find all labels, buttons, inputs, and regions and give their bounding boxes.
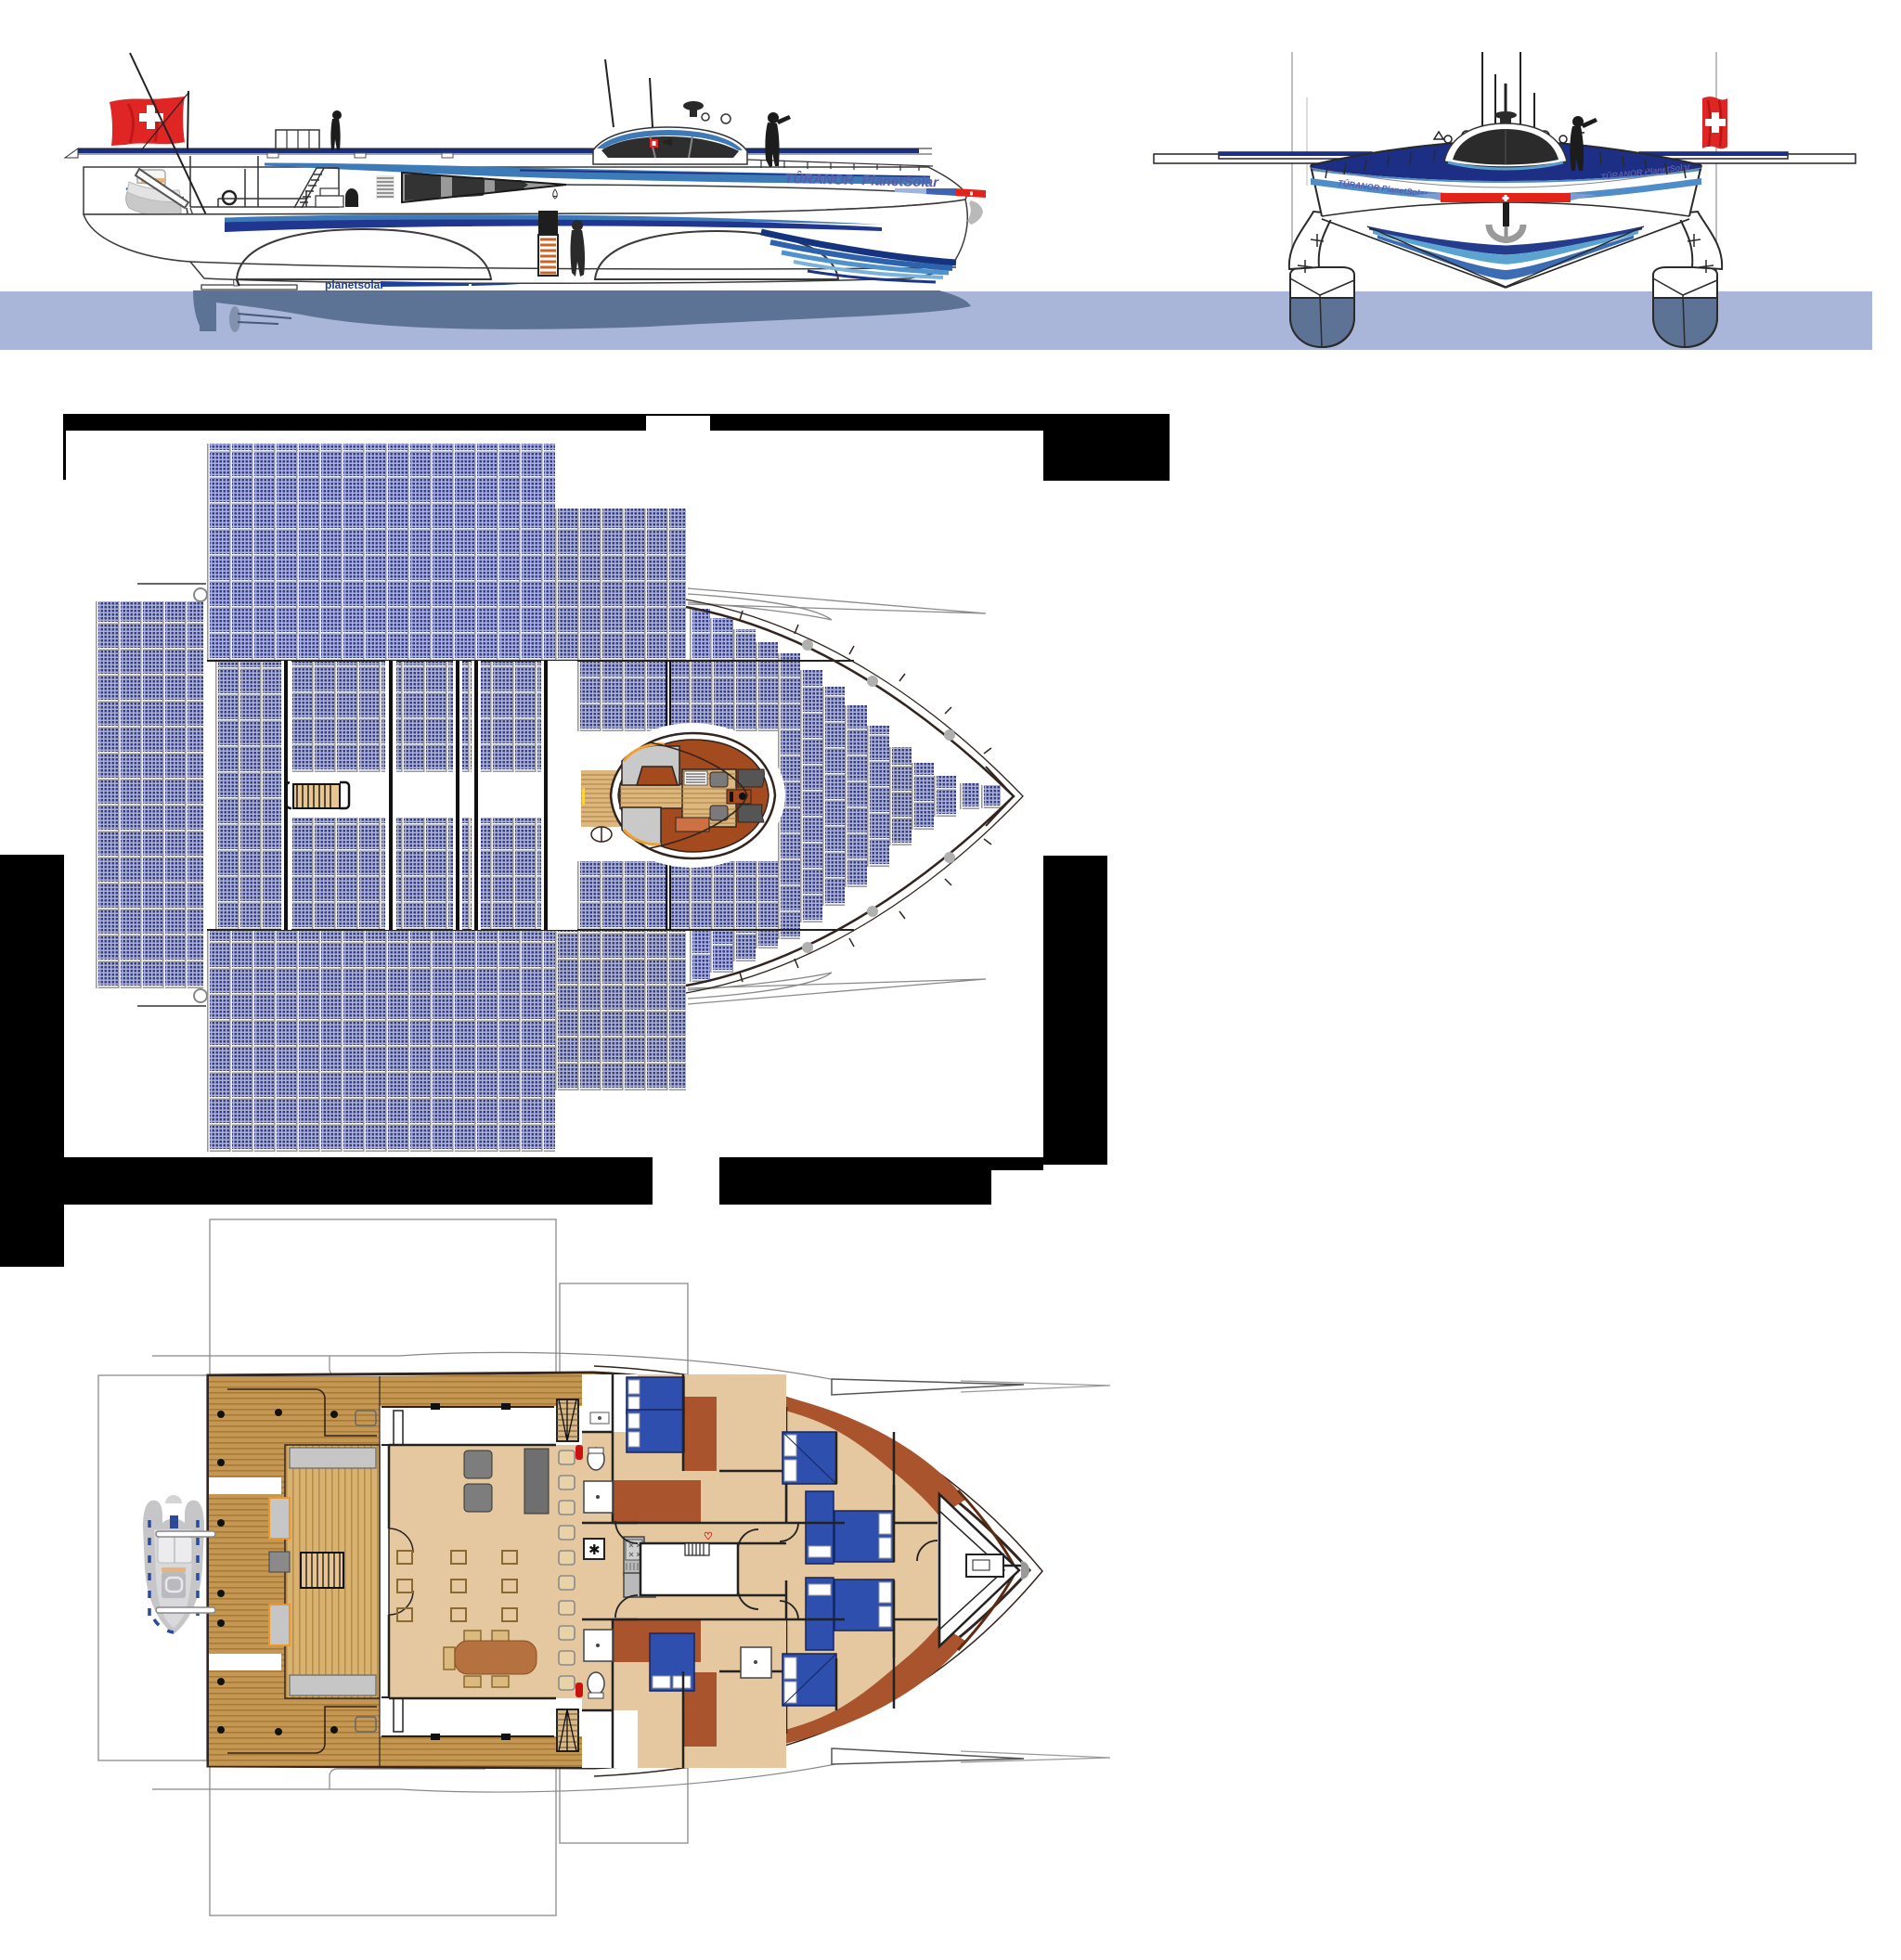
svg-text:planetsolar: planetsolar — [325, 278, 384, 291]
svg-text:✱: ✱ — [588, 1542, 601, 1558]
svg-text:♡: ♡ — [704, 1531, 713, 1542]
